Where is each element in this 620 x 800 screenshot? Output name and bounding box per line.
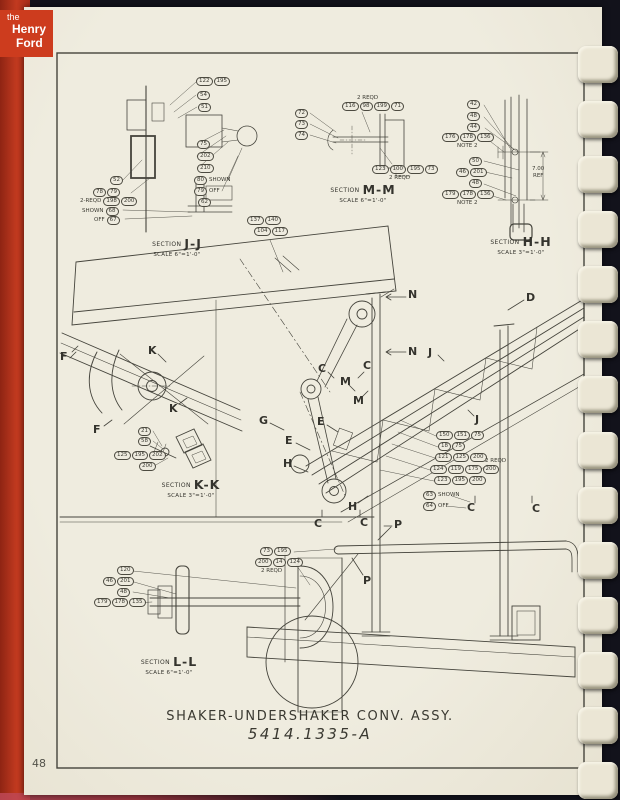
callout-row: 44 [467, 123, 480, 132]
part-number-callout: 195 [274, 547, 291, 556]
callout-row: 121125200 [435, 453, 487, 462]
view-letter-g: G [259, 414, 268, 427]
section-name: L-L [173, 654, 197, 669]
part-number-callout: 140 [265, 216, 282, 225]
part-number-callout: 116 [342, 102, 359, 111]
callout-row: 104117 [254, 227, 288, 236]
page-number: 48 [32, 757, 46, 770]
callout-row: 46201 [456, 168, 487, 177]
callout-row: 176178136 [442, 133, 494, 142]
view-letter-c: C [318, 362, 326, 375]
part-number-callout: 124 [430, 465, 447, 474]
callout-row: 125195202 [114, 451, 166, 460]
callout-row: 51 [198, 103, 211, 112]
part-number-callout: 14 [273, 558, 286, 567]
binding-tooth [578, 211, 618, 248]
part-number-callout: 100 [390, 165, 407, 174]
callout-row: 120 [117, 566, 134, 575]
part-number-callout: 195 [214, 77, 231, 86]
binding-tooth [578, 652, 618, 689]
view-letter-j: J [475, 413, 479, 426]
callout-row: 58 [138, 437, 151, 446]
callout-row: 63 SHOWN [423, 491, 460, 500]
part-number-callout: 73 [260, 547, 273, 556]
part-number-callout: 79 [194, 187, 207, 196]
henry-ford-logo: the Henry Ford [0, 10, 53, 57]
view-letter-m: M [353, 394, 364, 407]
section-kk-detail [150, 429, 211, 468]
part-number-callout: 122 [196, 77, 213, 86]
section-scale: SCALE 6"=1'-0" [132, 252, 222, 258]
logo-henry: Henry [12, 22, 46, 36]
part-number-callout: 46 [456, 168, 469, 177]
section-name: J-J [184, 236, 202, 251]
callout-row: 54 [197, 91, 210, 100]
drawing-title: SHAKER-UNDERSHAKER CONV. ASSY. [140, 709, 480, 724]
part-number-callout: 200 [255, 558, 272, 567]
callout-row: 48 [467, 112, 480, 121]
callout-row: 46201 [103, 577, 134, 586]
part-number-callout: 48 [469, 179, 482, 188]
callout-row: 73195 [260, 547, 291, 556]
view-letter-p: P [394, 518, 402, 531]
view-letter-c: C [532, 502, 540, 515]
part-number-callout: 201 [117, 577, 134, 586]
annotation-note2: NOTE 2 [457, 200, 478, 206]
part-number-callout: 119 [448, 465, 465, 474]
view-letter-e: E [317, 415, 325, 428]
view-letter-k: K [169, 402, 178, 415]
view-letter-d: D [526, 291, 535, 304]
part-number-callout: 71 [391, 102, 404, 111]
dimension-700: 7.00 [532, 166, 544, 172]
callout-row: 2-REQD 198200 [80, 197, 137, 206]
annotation-off: OFF [94, 217, 105, 223]
binding-tooth [578, 597, 618, 634]
part-number-callout: 68 [106, 207, 119, 216]
part-number-callout: 201 [470, 168, 487, 177]
binding-tooth [578, 542, 618, 579]
part-number-callout: 67 [107, 216, 120, 225]
part-number-callout: 175 [465, 465, 482, 474]
binding-tooth [578, 156, 618, 193]
part-number-callout: 176 [442, 133, 459, 142]
callout-row: 79 OFF [194, 187, 220, 196]
section-ll-caption: SECTIONL-L SCALE 6"=1'-0" [124, 651, 214, 676]
callout-row: 15015175 [436, 431, 484, 440]
callout-row: 179178136 [442, 190, 494, 199]
part-number-callout: 78 [93, 188, 106, 197]
section-name: H-H [523, 234, 552, 249]
part-number-callout: 123 [434, 476, 451, 485]
binding-tooth [578, 376, 618, 413]
callout-row: 137140 [247, 216, 281, 225]
view-letter-c: C [314, 517, 322, 530]
part-number-callout: 178 [112, 598, 129, 607]
part-number-callout: 202 [197, 152, 214, 161]
part-number-callout: 199 [374, 102, 391, 111]
annotation-shown: SHOWN [438, 492, 460, 498]
callout-row: 73 [295, 120, 308, 129]
part-number-callout: 74 [295, 131, 308, 140]
view-letter-m: M [340, 375, 351, 388]
callout-row: SHOWN 68 [82, 207, 119, 216]
annotation-off: OFF [438, 503, 449, 509]
part-number-callout: 50 [469, 157, 482, 166]
view-letter-n: N [408, 288, 417, 301]
title-block: SHAKER-UNDERSHAKER CONV. ASSY. 5414.1335… [140, 709, 480, 743]
section-ll-detail [133, 552, 333, 662]
annotation-2-reqd: 2 REQD [261, 568, 282, 574]
callout-row: 1169819971 [342, 102, 404, 111]
part-number-callout: 62 [198, 198, 211, 207]
part-number-callout: 48 [117, 588, 130, 597]
view-letter-p: P [363, 574, 371, 587]
section-jj-caption: SECTIONJ-J SCALE 6"=1'-0" [132, 233, 222, 258]
part-number-callout: 137 [247, 216, 264, 225]
view-letter-h: H [283, 457, 292, 470]
section-label: SECTION [330, 187, 359, 194]
part-number-callout: 195 [132, 451, 149, 460]
binding-tooth [578, 266, 618, 303]
scanned-book-page: the Henry Ford [0, 0, 620, 800]
section-kk-caption: SECTIONK-K SCALE 3"=1'-0" [146, 474, 236, 499]
part-number-callout: 202 [149, 451, 166, 460]
callout-row: 21 [138, 427, 151, 436]
callout-row: 200 [139, 462, 156, 471]
view-letter-c: C [467, 501, 475, 514]
view-letter-e: E [285, 434, 293, 447]
part-number-callout: 200 [483, 465, 500, 474]
view-letter-f: F [93, 423, 101, 436]
view-letter-n: N [408, 345, 417, 358]
part-number-callout: 210 [197, 164, 214, 173]
callout-row: 62 [198, 198, 211, 207]
section-jj-detail [123, 82, 257, 232]
callout-row: 124119175200 [430, 465, 499, 474]
part-number-callout: 124 [287, 558, 304, 567]
part-number-callout: 18 [438, 442, 451, 451]
section-mm-caption: SECTIONM-M SCALE 6"=1'-0" [318, 179, 408, 204]
section-scale: SCALE 6"=1'-0" [124, 670, 214, 676]
part-number-callout: 80 [194, 176, 207, 185]
part-number-callout: 178 [460, 133, 477, 142]
logo-the: the [7, 12, 20, 22]
part-number-callout: 120 [117, 566, 134, 575]
callout-row: 64 OFF [423, 502, 449, 511]
callout-row: 72 [295, 109, 308, 118]
part-number-callout: 63 [423, 491, 436, 500]
part-number-callout: 52 [110, 176, 123, 185]
callout-row: 1875 [438, 442, 465, 451]
view-letter-h: H [348, 500, 357, 513]
view-letter-f: F [60, 350, 68, 363]
section-name: M-M [363, 182, 396, 197]
callout-row: 122195 [196, 77, 230, 86]
annotation-note2: NOTE 2 [457, 143, 478, 149]
part-number-callout: 75 [471, 431, 484, 440]
binding-tooth [578, 707, 618, 744]
part-number-callout: 178 [460, 190, 477, 199]
section-hh-caption: SECTIONH-H SCALE 3"=1'-0" [476, 231, 566, 256]
callout-row: 48 [117, 588, 130, 597]
part-number-callout: 135 [129, 598, 146, 607]
section-label: SECTION [162, 482, 191, 489]
part-number-callout: 64 [423, 502, 436, 511]
callout-row: 179178135 [94, 598, 146, 607]
drawing-number: 5414.1335-A [140, 725, 480, 743]
part-number-callout: 72 [295, 109, 308, 118]
part-number-callout: 200 [139, 462, 156, 471]
dimension-ref: REF [533, 173, 543, 179]
annotation-2-reqd: 2 REQD [357, 95, 378, 101]
section-scale: SCALE 3"=1'-0" [476, 250, 566, 256]
part-number-callout: 79 [107, 188, 120, 197]
part-number-callout: 48 [467, 112, 480, 121]
part-number-callout: 179 [94, 598, 111, 607]
callout-row: 50 [469, 157, 482, 166]
part-number-callout: 195 [452, 476, 469, 485]
part-number-callout: 58 [138, 437, 151, 446]
callout-row: 7879 [93, 188, 120, 197]
part-number-callout: 198 [103, 197, 120, 206]
part-number-callout: 136 [477, 190, 494, 199]
part-number-callout: 151 [454, 431, 471, 440]
part-number-callout: 123 [372, 165, 389, 174]
callout-row: 52 [110, 176, 123, 185]
section-label: SECTION [152, 241, 181, 248]
annotation-2-reqd: 2-REQD [80, 198, 101, 204]
part-number-callout: 200 [469, 476, 486, 485]
callout-row: 12310019573 [372, 165, 438, 174]
part-number-callout: 195 [407, 165, 424, 174]
view-letter-c: C [360, 516, 368, 529]
view-letter-j: J [428, 346, 432, 359]
part-number-callout: 73 [295, 120, 308, 129]
part-number-callout: 46 [103, 577, 116, 586]
part-number-callout: 73 [425, 165, 438, 174]
binding-tooth [578, 432, 618, 469]
callout-row: 202 [197, 152, 214, 161]
part-number-callout: 117 [272, 227, 289, 236]
binding-tooth [578, 46, 618, 83]
section-label: SECTION [490, 239, 519, 246]
part-number-callout: 136 [477, 133, 494, 142]
callout-row: 75 [197, 140, 210, 149]
section-label: SECTION [141, 659, 170, 666]
callout-row: 48 [469, 179, 482, 188]
callout-row: 123195200 [434, 476, 486, 485]
part-number-callout: 125 [114, 451, 131, 460]
section-scale: SCALE 3"=1'-0" [146, 493, 236, 499]
section-name: K-K [194, 477, 220, 492]
view-letter-c: C [363, 359, 371, 372]
binding-tooth [578, 101, 618, 138]
part-number-callout: 121 [435, 453, 452, 462]
annotation-shown: SHOWN [82, 208, 104, 214]
callout-row: 210 [197, 164, 214, 173]
binding-tooth [578, 762, 618, 799]
part-number-callout: 75 [197, 140, 210, 149]
callout-row: 20014124 [255, 558, 303, 567]
part-number-callout: 42 [467, 100, 480, 109]
part-number-callout: 179 [442, 190, 459, 199]
part-number-callout: 104 [254, 227, 271, 236]
pan-callout-leader [270, 240, 283, 272]
part-number-callout: 54 [197, 91, 210, 100]
part-number-callout: 98 [360, 102, 373, 111]
base-beam-chute [247, 541, 578, 712]
undershaker-truss [306, 299, 584, 522]
part-number-callout: 75 [452, 442, 465, 451]
binding-tooth [578, 321, 618, 358]
part-number-callout: 44 [467, 123, 480, 132]
assembly-drawing-linework [0, 0, 620, 800]
view-letter-k: K [148, 344, 157, 357]
part-number-callout: 200 [121, 197, 138, 206]
callout-row: OFF 67 [94, 216, 120, 225]
callout-row: 74 [295, 131, 308, 140]
logo-ford: Ford [16, 36, 43, 50]
section-scale: SCALE 6"=1'-0" [318, 198, 408, 204]
annotation-2-reqd: 2 REQD [485, 458, 506, 464]
part-number-callout: 150 [436, 431, 453, 440]
part-number-callout: 51 [198, 103, 211, 112]
callout-row: 80 SHOWN [194, 176, 231, 185]
annotation-off: OFF [209, 188, 220, 194]
annotation-shown: SHOWN [209, 177, 231, 183]
part-number-callout: 21 [138, 427, 151, 436]
binding-tooth [578, 487, 618, 524]
callout-row: 42 [467, 100, 480, 109]
part-number-callout: 125 [453, 453, 470, 462]
